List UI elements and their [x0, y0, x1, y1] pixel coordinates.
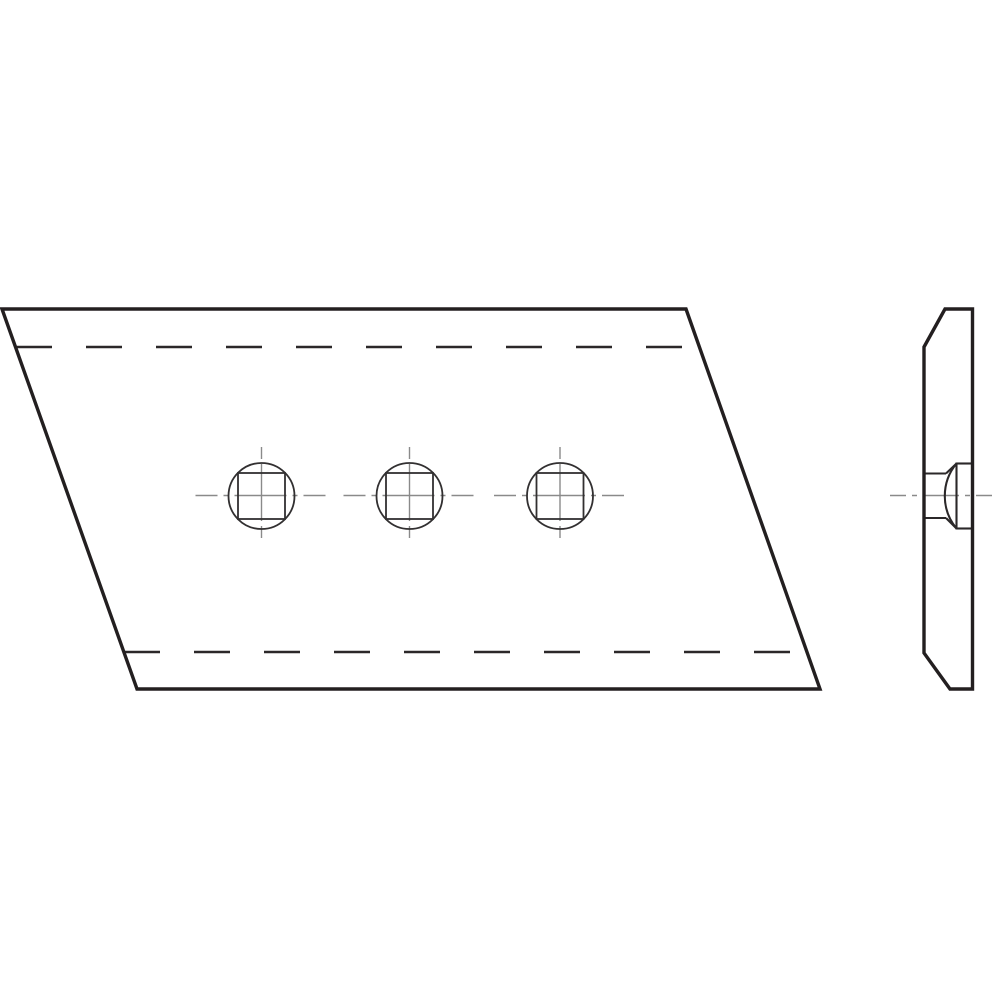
- side-view-outline: [924, 309, 973, 689]
- technical-drawing: [0, 0, 1000, 1000]
- front-view-outline: [2, 309, 820, 689]
- front-view: [2, 309, 820, 689]
- side-view: [890, 309, 995, 689]
- drawing-canvas: [0, 0, 1000, 1000]
